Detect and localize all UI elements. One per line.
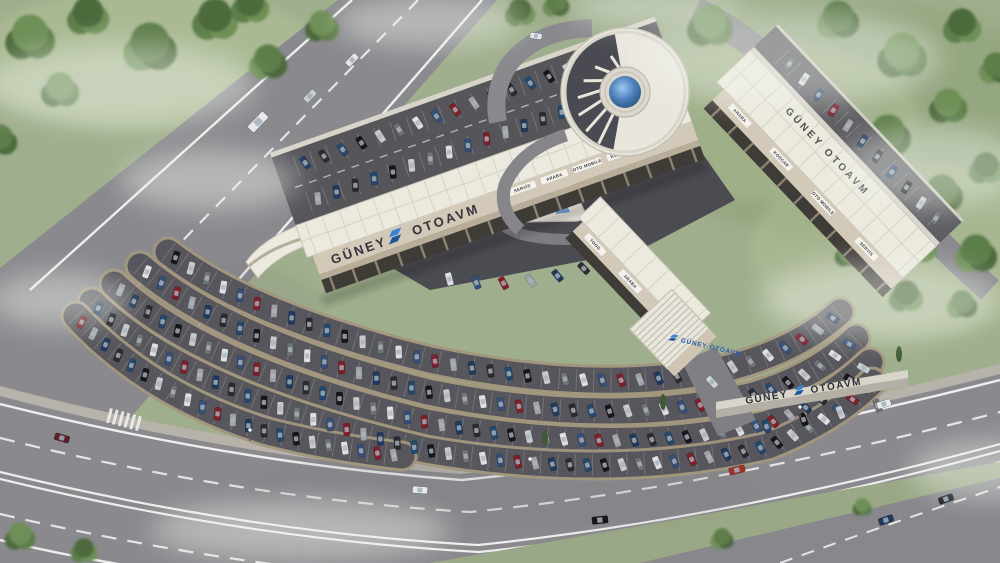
roof-deck-row (389, 165, 397, 179)
terrace-band (260, 396, 267, 409)
terrace-band (425, 385, 433, 399)
cypress-tree (896, 346, 902, 362)
terrace-band (377, 340, 384, 353)
terrace-band (421, 415, 428, 428)
terrace-band (353, 397, 360, 410)
fog-wisp (760, 260, 1000, 340)
roof-deck-row (427, 152, 435, 166)
terrace-band (320, 387, 326, 400)
terrace-band (288, 311, 295, 324)
terrace-band (408, 381, 415, 394)
terrace-band (253, 297, 261, 311)
terrace-band (359, 335, 366, 348)
terrace-band (394, 436, 401, 449)
terrace-band (276, 428, 283, 441)
terrace-band (277, 402, 284, 415)
roof-deck-row (352, 178, 360, 192)
terrace-band (237, 356, 245, 370)
cypress-tree (660, 394, 666, 410)
terrace-band (270, 336, 277, 349)
roof-deck-row (464, 139, 472, 153)
terrace-band (253, 362, 260, 375)
terrace-band (356, 366, 363, 379)
terrace-band (308, 435, 316, 449)
roof-deck-row (314, 192, 322, 206)
terrace-band (214, 407, 221, 420)
terrace-band (303, 381, 310, 394)
terrace-band (413, 350, 420, 363)
roof-deck-row (333, 185, 341, 199)
fog-wisp (640, 10, 940, 106)
terrace-band (373, 371, 380, 384)
terrace-band (324, 324, 331, 337)
terrace-band (269, 369, 276, 382)
roof-deck-row (502, 125, 510, 139)
terrace-band (271, 304, 278, 317)
terrace-band (212, 375, 220, 389)
roof-deck-row (520, 119, 528, 133)
terrace-band (395, 345, 402, 358)
terrace-band (431, 354, 439, 368)
terrace-band (387, 406, 394, 419)
tower-glass-dome (609, 76, 641, 108)
cypress-tree (542, 430, 548, 446)
roof-deck-row (408, 159, 416, 173)
terrace-band (370, 402, 377, 415)
terrace-band (292, 432, 300, 446)
terrace-band (229, 413, 236, 426)
terrace-band (410, 440, 417, 453)
terrace-band (287, 343, 294, 356)
terrace-band (404, 411, 411, 424)
terrace-band (377, 432, 384, 445)
render-stage: GÜNEY OTOAVM SERVİS ARABA OTO MOBILE KOS… (0, 0, 1000, 563)
terrace-band (236, 321, 244, 335)
terrace-band (294, 407, 301, 420)
aerial-render: GÜNEY OTOAVM SERVİS ARABA OTO MOBILE KOS… (0, 0, 1000, 563)
terrace-band (306, 318, 313, 331)
terrace-band (286, 375, 293, 388)
suv (592, 515, 609, 524)
terrace-band (341, 330, 347, 343)
terrace-band (310, 413, 316, 426)
terrace-band (336, 392, 343, 405)
terrace-band (228, 383, 236, 397)
terrace-band (321, 355, 328, 368)
terrace-band (199, 400, 207, 414)
terrace-band (390, 376, 397, 389)
terrace-band (343, 423, 350, 436)
roof-deck-row (370, 172, 378, 186)
terrace-band (327, 418, 334, 431)
fog-wisp (120, 150, 300, 210)
roof-deck-row (445, 145, 453, 159)
terrace-band (244, 389, 251, 402)
terrace-band (253, 329, 261, 343)
terrace-band (360, 428, 367, 441)
roof-deck-row (539, 112, 547, 126)
terrace-band (304, 349, 311, 362)
terrace-band (261, 424, 268, 437)
tree (231, 0, 269, 23)
terrace-band (338, 361, 344, 374)
car (412, 486, 427, 494)
roof-deck-row (483, 132, 491, 146)
fog-wisp (150, 500, 450, 560)
terrace-band (220, 348, 228, 362)
tree (543, 0, 570, 16)
